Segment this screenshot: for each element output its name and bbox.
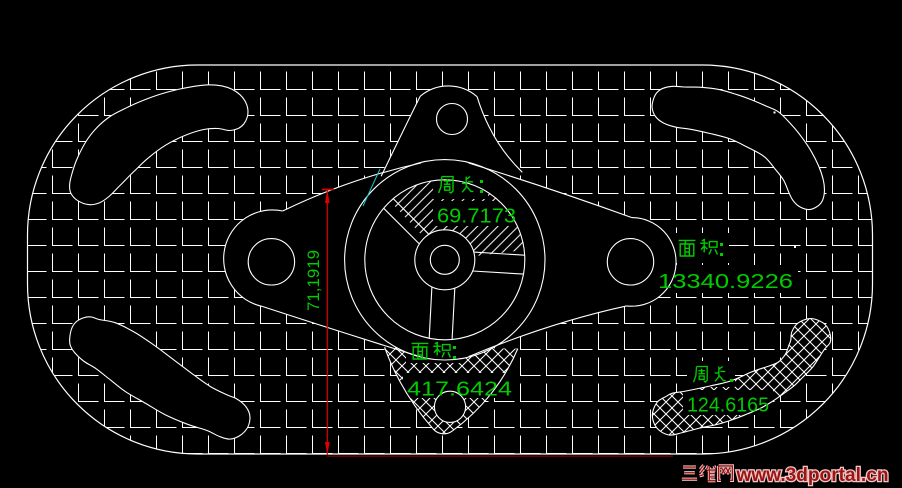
svg-text:71,1919: 71,1919 [304, 250, 323, 311]
svg-text:124.6165: 124.6165 [687, 395, 769, 417]
svg-text:69.7173: 69.7173 [437, 205, 516, 227]
svg-text:www.3dportal.cn: www.3dportal.cn [735, 465, 888, 486]
svg-text:13340.9226: 13340.9226 [658, 271, 793, 293]
svg-text:417.6424: 417.6424 [407, 379, 512, 401]
